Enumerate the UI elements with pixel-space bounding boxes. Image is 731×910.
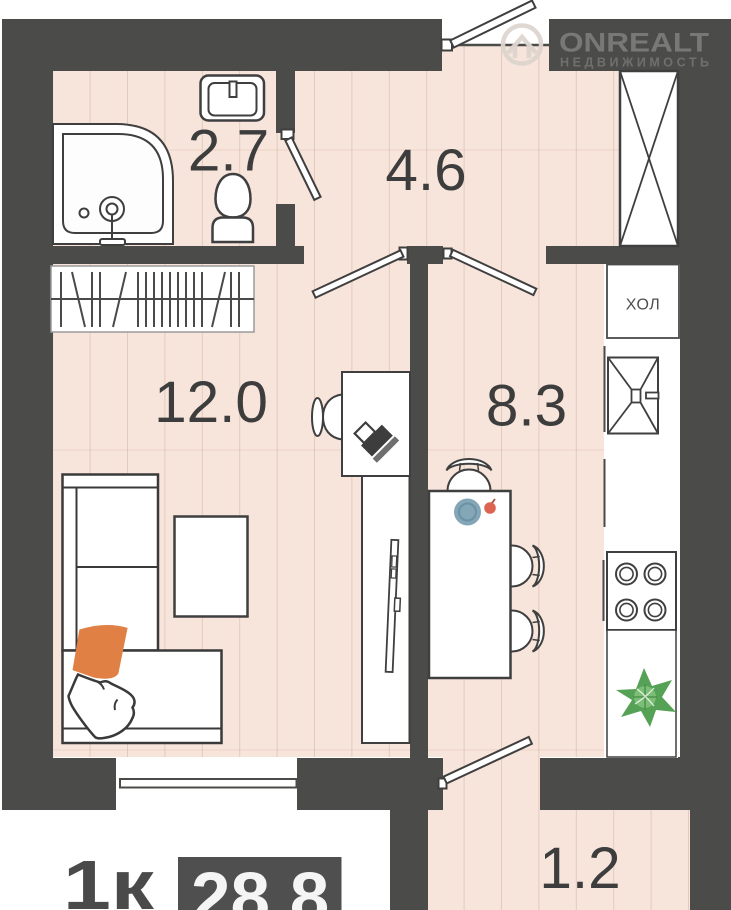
svg-text:1.2: 1.2 — [539, 836, 620, 901]
svg-text:ONREALT: ONREALT — [559, 27, 709, 57]
svg-text:ХОЛ: ХОЛ — [626, 297, 660, 314]
svg-text:4.6: 4.6 — [385, 138, 466, 203]
svg-text:1к: 1к — [63, 846, 155, 910]
svg-text:2.7: 2.7 — [188, 119, 269, 184]
svg-text:12.0: 12.0 — [154, 370, 268, 435]
svg-text:28.8: 28.8 — [191, 859, 329, 910]
svg-text:8.3: 8.3 — [486, 374, 567, 439]
